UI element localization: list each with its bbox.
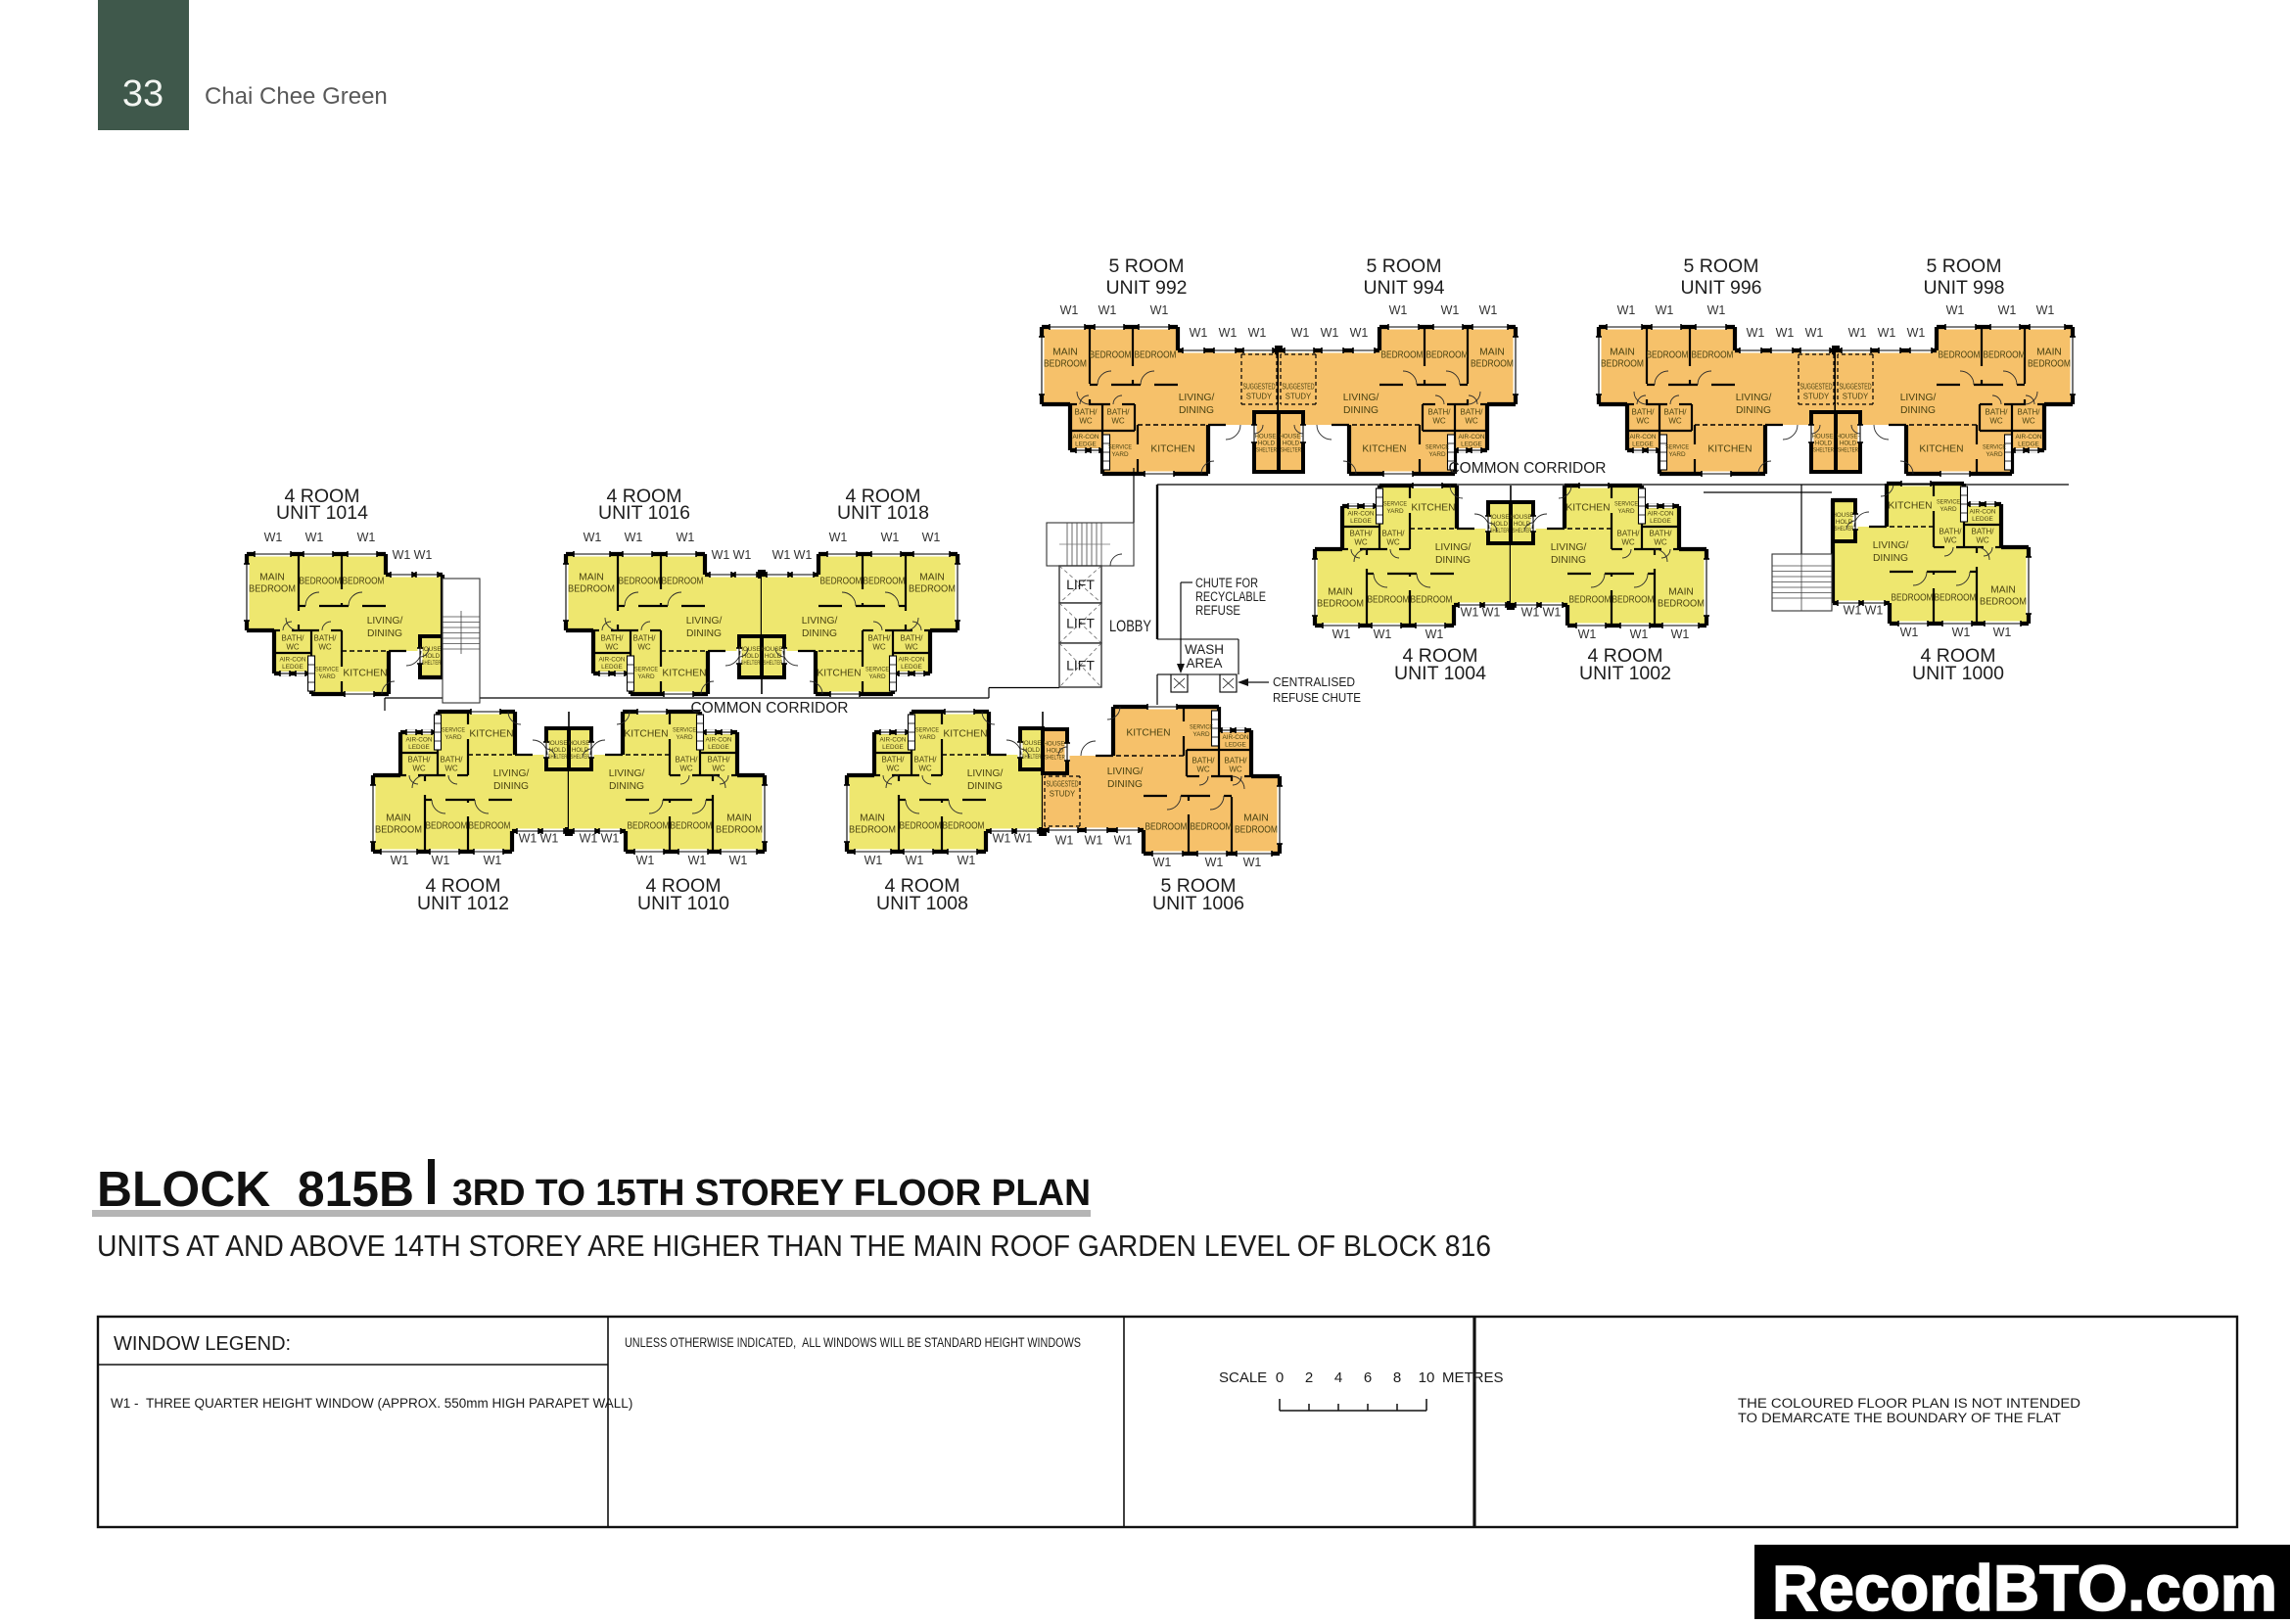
svg-text:W1: W1	[391, 854, 409, 867]
svg-text:BEDROOM: BEDROOM	[1381, 350, 1424, 361]
svg-text:W1: W1	[1114, 834, 1133, 848]
svg-text:KITCHEN: KITCHEN	[1150, 444, 1194, 455]
svg-text:BEDROOM: BEDROOM	[375, 825, 422, 836]
svg-text:WC: WC	[2022, 416, 2035, 425]
svg-text:LIVING/: LIVING/	[609, 768, 645, 779]
svg-text:WASH: WASH	[1185, 642, 1224, 657]
svg-text:STUDY: STUDY	[1050, 790, 1076, 799]
svg-text:LEDGE: LEDGE	[408, 744, 430, 751]
svg-text:BEDROOM: BEDROOM	[1892, 593, 1934, 604]
svg-text:KITCHEN: KITCHEN	[1411, 503, 1455, 514]
svg-text:WC: WC	[1229, 765, 1242, 773]
svg-text:BEDROOM: BEDROOM	[1984, 350, 2026, 361]
svg-text:DINING: DINING	[802, 628, 837, 639]
svg-text:W1: W1	[1085, 834, 1103, 848]
svg-text:BEDROOM: BEDROOM	[1317, 599, 1364, 610]
svg-text:BEDROOM: BEDROOM	[300, 577, 342, 587]
svg-text:LEDGE: LEDGE	[1972, 516, 1993, 523]
svg-text:WC: WC	[1111, 416, 1125, 425]
svg-text:BATH/: BATH/	[1939, 527, 1963, 535]
svg-text:MAIN: MAIN	[919, 573, 945, 583]
svg-text:UNIT 1016: UNIT 1016	[598, 502, 690, 524]
svg-text:MAIN: MAIN	[1668, 587, 1694, 598]
svg-text:DINING: DINING	[1900, 405, 1936, 416]
svg-text:HOUSE-: HOUSE-	[738, 646, 762, 653]
svg-text:LIVING/: LIVING/	[1736, 393, 1772, 403]
svg-text:3RD TO 15TH STOREY FLOOR PLAN: 3RD TO 15TH STOREY FLOOR PLAN	[452, 1173, 1091, 1214]
svg-text:SUGGESTED: SUGGESTED	[1243, 383, 1276, 392]
svg-text:5 ROOM: 5 ROOM	[1367, 255, 1442, 277]
svg-text:AIR-CON: AIR-CON	[2016, 434, 2042, 441]
svg-text:SHELTER: SHELTER	[1045, 755, 1065, 762]
svg-text:BEDROOM: BEDROOM	[900, 821, 942, 832]
svg-text:W1: W1	[881, 531, 900, 544]
svg-text:AIR-CON: AIR-CON	[280, 657, 306, 664]
svg-text:HOUSE-: HOUSE-	[419, 646, 443, 653]
svg-text:WC: WC	[1989, 416, 2003, 425]
svg-text:AIR-CON: AIR-CON	[1970, 509, 1996, 516]
svg-text:W1: W1	[393, 548, 411, 562]
svg-text:UNIT 1000: UNIT 1000	[1912, 663, 2004, 684]
svg-text:SHELTER: SHELTER	[1256, 447, 1277, 454]
svg-text:BATH/: BATH/	[1632, 407, 1656, 416]
svg-text:SCALE: SCALE	[1219, 1369, 1267, 1386]
svg-text:LIFT: LIFT	[1066, 616, 1095, 631]
svg-text:AIR-CON: AIR-CON	[599, 657, 626, 664]
svg-text:W1: W1	[625, 531, 643, 544]
svg-text:AIR-CON: AIR-CON	[1223, 734, 1249, 741]
svg-text:BATH/: BATH/	[1075, 407, 1098, 416]
svg-text:SERVICE: SERVICE	[1937, 499, 1960, 506]
svg-text:SERVICE: SERVICE	[1425, 444, 1449, 451]
svg-text:HOLD: HOLD	[1258, 441, 1276, 447]
svg-text:BATH/: BATH/	[882, 755, 906, 764]
svg-text:SUGGESTED: SUGGESTED	[1800, 383, 1833, 392]
svg-text:LIVING/: LIVING/	[1107, 766, 1144, 777]
svg-text:LIVING/: LIVING/	[367, 616, 403, 626]
svg-text:W1: W1	[772, 548, 791, 562]
svg-text:STUDY: STUDY	[1803, 393, 1830, 401]
svg-text:KITCHEN: KITCHEN	[469, 729, 513, 740]
svg-text:W1: W1	[1248, 326, 1267, 340]
svg-text:YARD: YARD	[868, 673, 886, 680]
svg-text:HOLD: HOLD	[742, 653, 760, 660]
svg-text:W1: W1	[688, 854, 707, 867]
svg-text:HOLD: HOLD	[765, 653, 782, 660]
svg-text:LEDGE: LEDGE	[601, 664, 623, 671]
svg-text:5 ROOM: 5 ROOM	[1684, 255, 1759, 277]
svg-text:BEDROOM: BEDROOM	[1939, 350, 1981, 361]
svg-text:YARD: YARD	[1986, 451, 2003, 458]
svg-text:W1: W1	[1521, 606, 1540, 620]
svg-text:HOUSE-: HOUSE-	[1043, 741, 1066, 748]
svg-text:UNIT 1010: UNIT 1010	[637, 893, 729, 914]
svg-text:STUDY: STUDY	[1246, 393, 1273, 401]
svg-text:WC: WC	[444, 764, 458, 772]
svg-text:W1: W1	[1878, 326, 1896, 340]
svg-text:COMMON CORRIDOR: COMMON CORRIDOR	[690, 700, 848, 717]
svg-text:DINING: DINING	[686, 628, 722, 639]
svg-text:W1: W1	[865, 854, 883, 867]
svg-text:METRES: METRES	[1442, 1369, 1504, 1386]
svg-text:W1: W1	[1205, 856, 1224, 869]
svg-text:KITCHEN: KITCHEN	[943, 729, 987, 740]
svg-text:W1: W1	[2036, 303, 2055, 317]
svg-text:LEDGE: LEDGE	[282, 664, 304, 671]
svg-text:UNIT 998: UNIT 998	[1923, 277, 2004, 299]
svg-text:W1: W1	[1153, 856, 1172, 869]
svg-text:LIVING/: LIVING/	[1435, 542, 1472, 553]
svg-text:WC: WC	[872, 642, 886, 651]
svg-text:BATH/: BATH/	[2018, 407, 2041, 416]
svg-text:W1: W1	[1865, 604, 1884, 618]
svg-text:BEDROOM: BEDROOM	[820, 577, 863, 587]
svg-text:W1: W1	[1190, 326, 1208, 340]
svg-text:Chai Chee Green: Chai Chee Green	[205, 83, 388, 110]
svg-text:SERVICE: SERVICE	[915, 727, 939, 734]
svg-text:HOUSE-: HOUSE-	[1254, 434, 1278, 441]
svg-text:W1: W1	[1993, 626, 2012, 639]
svg-text:5 ROOM: 5 ROOM	[1109, 255, 1185, 277]
svg-text:HOUSE-: HOUSE-	[1487, 514, 1511, 521]
svg-text:STUDY: STUDY	[1285, 393, 1312, 401]
svg-text:AREA: AREA	[1187, 656, 1223, 671]
svg-text:BATH/: BATH/	[441, 755, 464, 764]
svg-text:WC: WC	[286, 642, 300, 651]
svg-text:HOLD: HOLD	[423, 653, 441, 660]
svg-text:W1: W1	[580, 832, 598, 846]
svg-text:HOUSE-: HOUSE-	[1811, 434, 1835, 441]
svg-text:LEDGE: LEDGE	[1350, 518, 1372, 525]
svg-text:W1: W1	[922, 531, 941, 544]
svg-text:BATH/: BATH/	[1428, 407, 1452, 416]
svg-text:W1: W1	[1671, 627, 1690, 641]
svg-text:BATH/: BATH/	[1986, 407, 2009, 416]
svg-text:SERVICE: SERVICE	[634, 667, 658, 673]
svg-text:LIVING/: LIVING/	[1343, 393, 1379, 403]
svg-text:HOUSE-: HOUSE-	[1510, 514, 1533, 521]
svg-text:BATH/: BATH/	[1617, 529, 1641, 537]
svg-text:W1: W1	[829, 531, 848, 544]
svg-text:SERVICE: SERVICE	[865, 667, 889, 673]
svg-text:W1: W1	[540, 832, 559, 846]
svg-text:WC: WC	[318, 642, 332, 651]
svg-text:W1: W1	[712, 548, 730, 562]
svg-text:W1: W1	[1998, 303, 2017, 317]
svg-text:W1: W1	[357, 531, 376, 544]
svg-text:WC: WC	[1636, 416, 1650, 425]
svg-text:AIR-CON: AIR-CON	[1459, 434, 1485, 441]
svg-text:YARD: YARD	[918, 734, 936, 741]
svg-text:SHELTER: SHELTER	[422, 660, 442, 667]
svg-text:LEDGE: LEDGE	[882, 744, 904, 751]
svg-text:BEDROOM: BEDROOM	[662, 577, 704, 587]
svg-text:W1: W1	[1055, 834, 1074, 848]
svg-text:KITCHEN: KITCHEN	[1707, 444, 1752, 455]
svg-text:WC: WC	[1354, 537, 1368, 546]
svg-text:W1: W1	[1630, 627, 1649, 641]
svg-text:BEDROOM: BEDROOM	[1426, 350, 1469, 361]
svg-text:WC: WC	[918, 764, 932, 772]
svg-text:BEDROOM: BEDROOM	[1601, 359, 1644, 370]
svg-text:LIVING/: LIVING/	[1900, 393, 1937, 403]
svg-text:LIVING/: LIVING/	[802, 616, 838, 626]
svg-text:BEDROOM: BEDROOM	[628, 821, 670, 832]
svg-text:SERVICE: SERVICE	[315, 667, 339, 673]
svg-text:KITCHEN: KITCHEN	[1362, 444, 1406, 455]
svg-text:BATH/: BATH/	[1461, 407, 1484, 416]
svg-text:DINING: DINING	[967, 781, 1003, 792]
svg-text:DINING: DINING	[1179, 405, 1214, 416]
svg-text:LEDGE: LEDGE	[1225, 742, 1246, 749]
svg-text:CENTRALISED: CENTRALISED	[1273, 674, 1355, 689]
svg-text:CHUTE FOR: CHUTE FOR	[1195, 576, 1258, 590]
svg-text:BEDROOM: BEDROOM	[1191, 822, 1233, 833]
svg-text:SERVICE: SERVICE	[442, 727, 465, 734]
svg-text:W1: W1	[1543, 606, 1562, 620]
svg-text:WC: WC	[886, 764, 900, 772]
svg-text:UNIT 1002: UNIT 1002	[1579, 663, 1671, 684]
svg-text:W1: W1	[1482, 606, 1501, 620]
svg-text:W1: W1	[484, 854, 502, 867]
svg-text:W1: W1	[1291, 326, 1310, 340]
svg-text:HOUSE-: HOUSE-	[1279, 434, 1302, 441]
svg-text:BEDROOM: BEDROOM	[1368, 595, 1410, 606]
svg-text:MAIN: MAIN	[1243, 813, 1269, 824]
svg-text:SERVICE: SERVICE	[1983, 444, 2006, 451]
svg-text:BEDROOM: BEDROOM	[1471, 359, 1514, 370]
svg-text:MAIN: MAIN	[579, 573, 604, 583]
svg-text:UNITS AT AND ABOVE 14TH STOREY: UNITS AT AND ABOVE 14TH STOREY ARE HIGHE…	[97, 1230, 1491, 1263]
svg-text:SHELTER: SHELTER	[764, 660, 783, 667]
svg-text:W1: W1	[1776, 326, 1795, 340]
svg-text:10: 10	[1419, 1369, 1435, 1386]
svg-text:BEDROOM: BEDROOM	[1411, 595, 1453, 606]
svg-text:WC: WC	[1668, 416, 1682, 425]
svg-text:MAIN: MAIN	[2036, 348, 2062, 358]
svg-text:WC: WC	[1465, 416, 1478, 425]
svg-text:WC: WC	[412, 764, 426, 772]
svg-text:BEDROOM: BEDROOM	[1135, 350, 1177, 361]
svg-text:W1 - THREE QUARTER HEIGHT WIN: W1 - THREE QUARTER HEIGHT WINDOW (APPROX…	[111, 1396, 632, 1411]
svg-text:COMMON CORRIDOR: COMMON CORRIDOR	[1448, 460, 1606, 477]
svg-text:MAIN: MAIN	[726, 813, 752, 824]
svg-text:LEDGE: LEDGE	[2018, 441, 2039, 448]
svg-text:W1: W1	[414, 548, 433, 562]
svg-text:LIVING/: LIVING/	[686, 616, 723, 626]
svg-text:BEDROOM: BEDROOM	[1647, 350, 1689, 361]
svg-text:KITCHEN: KITCHEN	[1126, 728, 1170, 739]
svg-text:UNIT 1006: UNIT 1006	[1152, 893, 1244, 914]
svg-text:W1: W1	[1150, 303, 1169, 317]
svg-text:LEDGE: LEDGE	[708, 744, 729, 751]
svg-text:BATH/: BATH/	[633, 633, 657, 642]
svg-text:W1: W1	[794, 548, 813, 562]
svg-text:KITCHEN: KITCHEN	[1919, 444, 1963, 455]
svg-text:DINING: DINING	[493, 781, 529, 792]
svg-text:SHELTER: SHELTER	[1490, 528, 1510, 534]
svg-text:YARD: YARD	[1617, 508, 1635, 515]
svg-text:MAIN: MAIN	[1990, 585, 2016, 596]
svg-text:BATH/: BATH/	[1225, 756, 1248, 765]
svg-text:BEDROOM: BEDROOM	[1044, 359, 1087, 370]
svg-text:WC: WC	[1943, 535, 1957, 544]
svg-text:BEDROOM: BEDROOM	[1980, 597, 2027, 608]
svg-text:BEDROOM: BEDROOM	[1692, 350, 1734, 361]
svg-text:REFUSE: REFUSE	[1195, 603, 1240, 618]
svg-text:SUGGESTED: SUGGESTED	[1047, 780, 1079, 789]
svg-text:WC: WC	[679, 764, 693, 772]
svg-text:LEDGE: LEDGE	[901, 664, 922, 671]
svg-text:W1: W1	[1848, 326, 1867, 340]
svg-text:AIR-CON: AIR-CON	[1648, 511, 1674, 518]
svg-text:DINING: DINING	[367, 628, 402, 639]
svg-text:W1: W1	[1479, 303, 1498, 317]
svg-text:YARD: YARD	[1192, 731, 1210, 738]
svg-text:W1: W1	[1350, 326, 1369, 340]
svg-text:5 ROOM: 5 ROOM	[1927, 255, 2002, 277]
svg-text:BATH/: BATH/	[314, 633, 338, 642]
svg-text:HOUSE-: HOUSE-	[1832, 512, 1855, 519]
svg-text:WC: WC	[1079, 416, 1093, 425]
svg-text:UNIT 1014: UNIT 1014	[276, 502, 368, 524]
svg-text:WINDOW LEGEND:: WINDOW LEGEND:	[114, 1333, 291, 1355]
svg-text:4: 4	[1334, 1369, 1342, 1386]
svg-text:2: 2	[1305, 1369, 1313, 1386]
svg-text:W1: W1	[1389, 303, 1408, 317]
svg-text:W1: W1	[519, 832, 537, 846]
svg-text:W1: W1	[1425, 627, 1444, 641]
svg-text:DINING: DINING	[1107, 779, 1143, 790]
svg-text:W1: W1	[1805, 326, 1824, 340]
svg-text:YARD: YARD	[1668, 451, 1686, 458]
svg-text:W1: W1	[1321, 326, 1339, 340]
svg-text:LIVING/: LIVING/	[493, 768, 530, 779]
svg-text:HOUSE-: HOUSE-	[568, 740, 591, 747]
svg-text:33: 33	[122, 73, 164, 115]
svg-text:REFUSE CHUTE: REFUSE CHUTE	[1273, 690, 1361, 705]
svg-text:BEDROOM: BEDROOM	[469, 821, 511, 832]
svg-text:W1: W1	[677, 531, 695, 544]
svg-text:BEDROOM: BEDROOM	[426, 821, 468, 832]
svg-text:WC: WC	[1196, 765, 1210, 773]
svg-text:BATH/: BATH/	[1664, 407, 1688, 416]
svg-text:KITCHEN: KITCHEN	[662, 669, 706, 679]
svg-text:BATH/: BATH/	[1350, 529, 1374, 537]
svg-text:BEDROOM: BEDROOM	[568, 584, 615, 595]
svg-text:MAIN: MAIN	[386, 813, 411, 824]
svg-text:AIR-CON: AIR-CON	[706, 737, 732, 744]
svg-text:YARD: YARD	[318, 673, 336, 680]
svg-text:WC: WC	[1386, 537, 1400, 546]
svg-text:MAIN: MAIN	[860, 813, 885, 824]
svg-text:DINING: DINING	[1736, 405, 1771, 416]
svg-text:W1: W1	[733, 548, 752, 562]
svg-text:W1: W1	[1332, 627, 1351, 641]
svg-text:TO DEMARCATE THE BOUNDARY OF T: TO DEMARCATE THE BOUNDARY OF THE FLAT	[1738, 1411, 2061, 1425]
svg-text:W1: W1	[636, 854, 655, 867]
svg-text:LIFT: LIFT	[1066, 658, 1095, 673]
svg-text:WC: WC	[1432, 416, 1446, 425]
svg-text:SHELTER: SHELTER	[1838, 447, 1858, 454]
svg-text:YARD: YARD	[1111, 451, 1129, 458]
svg-text:SHELTER: SHELTER	[1835, 526, 1854, 533]
svg-text:AIR-CON: AIR-CON	[899, 657, 925, 664]
svg-text:W1: W1	[264, 531, 283, 544]
svg-text:MAIN: MAIN	[1052, 348, 1078, 358]
svg-text:W1: W1	[1617, 303, 1636, 317]
svg-text:AIR-CON: AIR-CON	[406, 737, 433, 744]
svg-text:SHELTER: SHELTER	[1813, 447, 1834, 454]
svg-text:MAIN: MAIN	[1479, 348, 1505, 358]
svg-text:WC: WC	[637, 642, 651, 651]
svg-text:UNIT 994: UNIT 994	[1363, 277, 1444, 299]
svg-text:W1: W1	[432, 854, 450, 867]
svg-text:SERVICE: SERVICE	[1383, 501, 1407, 508]
svg-text:W1: W1	[1578, 627, 1597, 641]
svg-text:W1: W1	[958, 854, 976, 867]
svg-text:WC: WC	[905, 642, 918, 651]
svg-text:SERVICE: SERVICE	[673, 727, 696, 734]
svg-text:WC: WC	[605, 642, 619, 651]
svg-text:BATH/: BATH/	[601, 633, 625, 642]
svg-text:WC: WC	[1976, 535, 1989, 544]
svg-text:LEDGE: LEDGE	[1461, 441, 1482, 448]
svg-text:SHELTER: SHELTER	[1022, 754, 1042, 761]
svg-text:YARD: YARD	[676, 734, 693, 741]
svg-text:MAIN: MAIN	[1328, 587, 1353, 598]
svg-text:W1: W1	[1946, 303, 1965, 317]
svg-text:KITCHEN: KITCHEN	[817, 669, 861, 679]
svg-text:DINING: DINING	[1551, 555, 1586, 566]
svg-text:LOBBY: LOBBY	[1109, 618, 1151, 635]
svg-text:BEDROOM: BEDROOM	[1658, 599, 1705, 610]
svg-text:W1: W1	[305, 531, 324, 544]
svg-text:W1: W1	[1243, 856, 1262, 869]
svg-text:UNIT 1018: UNIT 1018	[837, 502, 929, 524]
svg-text:UNIT 1012: UNIT 1012	[417, 893, 509, 914]
svg-text:W1: W1	[601, 832, 620, 846]
svg-text:UNIT 992: UNIT 992	[1105, 277, 1187, 299]
svg-text:HOUSE-: HOUSE-	[1019, 740, 1043, 747]
svg-text:BEDROOM: BEDROOM	[1090, 350, 1132, 361]
svg-text:8: 8	[1393, 1369, 1401, 1386]
svg-text:SERVICE: SERVICE	[1614, 501, 1638, 508]
svg-text:W1: W1	[1014, 832, 1033, 846]
svg-text:W1: W1	[1900, 626, 1919, 639]
svg-text:W1: W1	[1656, 303, 1674, 317]
svg-text:W1: W1	[729, 854, 748, 867]
svg-text:W1: W1	[993, 832, 1011, 846]
svg-text:BATH/: BATH/	[676, 755, 699, 764]
svg-text:W1: W1	[1844, 604, 1862, 618]
svg-text:YARD: YARD	[637, 673, 655, 680]
svg-text:HOUSE-: HOUSE-	[545, 740, 569, 747]
svg-text:W1: W1	[1461, 606, 1479, 620]
svg-text:BATH/: BATH/	[868, 633, 892, 642]
svg-text:BEDROOM: BEDROOM	[909, 584, 956, 595]
svg-text:LEDGE: LEDGE	[1075, 441, 1097, 448]
svg-text:W1: W1	[1747, 326, 1765, 340]
svg-text:W1: W1	[1441, 303, 1460, 317]
svg-text:BATH/: BATH/	[282, 633, 305, 642]
svg-text:W1: W1	[1707, 303, 1726, 317]
svg-text:UNLESS OTHERWISE INDICATED, A: UNLESS OTHERWISE INDICATED, ALL WINDOWS …	[625, 1335, 1081, 1350]
svg-text:KITCHEN: KITCHEN	[1888, 501, 1932, 512]
svg-text:BEDROOM: BEDROOM	[1235, 825, 1278, 836]
svg-text:W1: W1	[1219, 326, 1238, 340]
svg-text:SHELTER: SHELTER	[741, 660, 761, 667]
